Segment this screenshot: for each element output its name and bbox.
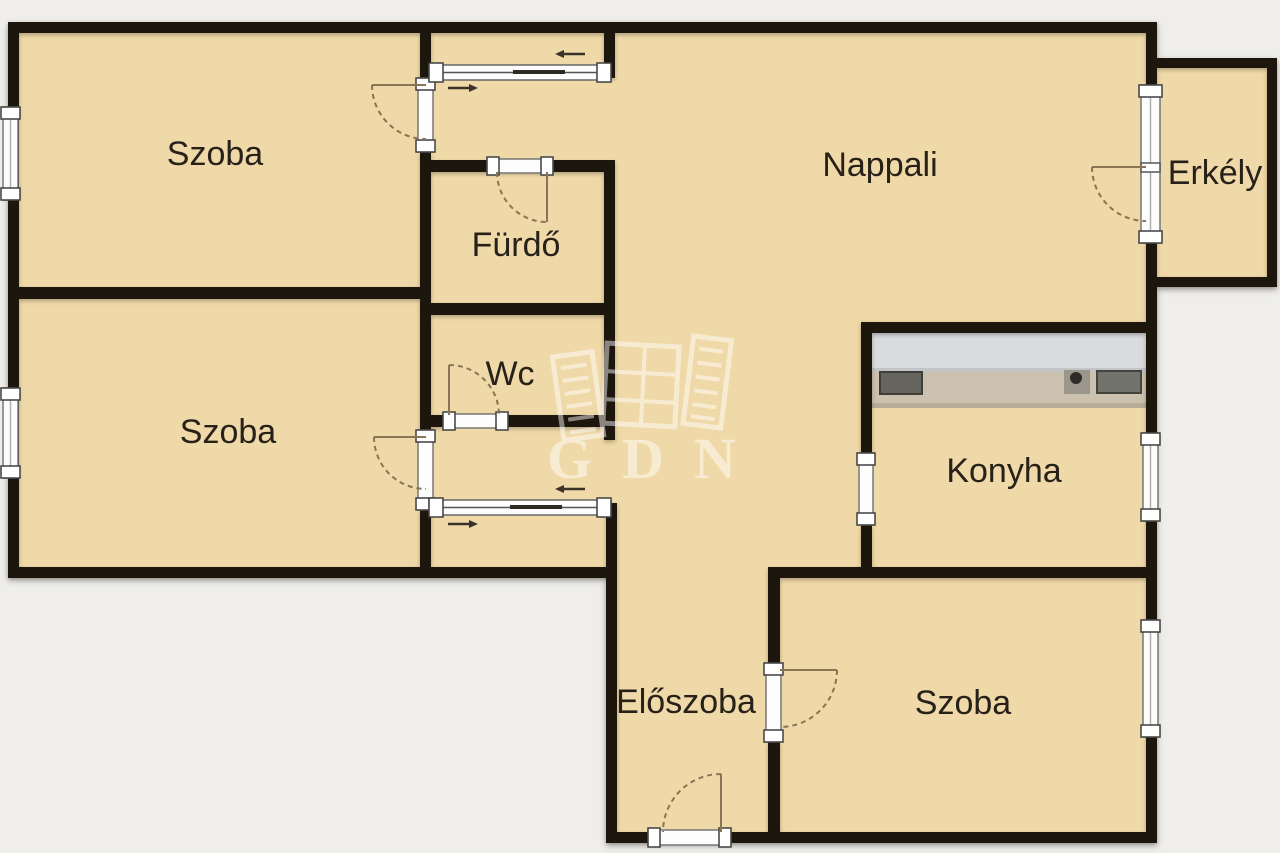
kitchen-sink-photo <box>880 372 922 394</box>
floor-plan: GDN Szoba Szoba Fürdő Wc Nappali Erkély … <box>0 0 1280 853</box>
room-label-nappali: Nappali <box>822 146 937 184</box>
wall-kitchen-bottom <box>768 567 1157 578</box>
wall-hall-room-divider-a <box>768 567 780 663</box>
wall-hall-room-divider-b <box>768 742 780 843</box>
wall-between-left-rooms <box>8 287 431 299</box>
wall-kitchen-left-a <box>861 322 872 453</box>
sliding-door-top-closet <box>429 63 611 82</box>
window-szoba-bottom-right <box>1141 620 1160 737</box>
wall-kitchen-top <box>861 322 1157 333</box>
wall-outer-left <box>8 22 19 578</box>
kitchen-photo <box>872 333 1146 408</box>
room-label-furdo: Fürdő <box>472 226 561 264</box>
room-label-szoba-bottom: Szoba <box>915 684 1011 722</box>
wall-hall-left <box>606 503 617 843</box>
sliding-door-bottom-closet <box>429 498 611 517</box>
wall-balcony-bottom <box>1150 277 1277 287</box>
opening-konyha <box>857 453 875 525</box>
watermark-brand-text: GDN <box>547 426 766 491</box>
room-label-eloszoba: Előszoba <box>616 683 756 721</box>
wall-mid-vertical-c <box>420 510 431 578</box>
wall-bottom-left-section <box>8 567 617 578</box>
kitchen-stove-photo <box>1097 371 1141 393</box>
window-szoba-top-left <box>1 107 20 200</box>
wall-balcony-top <box>1150 58 1277 68</box>
room-label-szoba-top-left: Szoba <box>167 135 263 173</box>
window-szoba-mid-left <box>1 388 20 478</box>
wall-wc-bottom-a <box>420 415 443 427</box>
wall-outer-top <box>8 22 1157 33</box>
window-konyha-right <box>1141 433 1160 521</box>
room-label-wc: Wc <box>485 355 534 393</box>
floorplan-canvas: GDN Szoba Szoba Fürdő Wc Nappali Erkély … <box>0 0 1280 853</box>
room-label-erkely: Erkély <box>1168 154 1262 192</box>
wall-bath-bottom <box>420 303 615 315</box>
wall-balcony-right <box>1267 58 1277 287</box>
room-label-konyha: Konyha <box>946 452 1061 490</box>
wall-mid-vertical-b <box>420 152 431 430</box>
room-label-szoba-mid-left: Szoba <box>180 413 276 451</box>
